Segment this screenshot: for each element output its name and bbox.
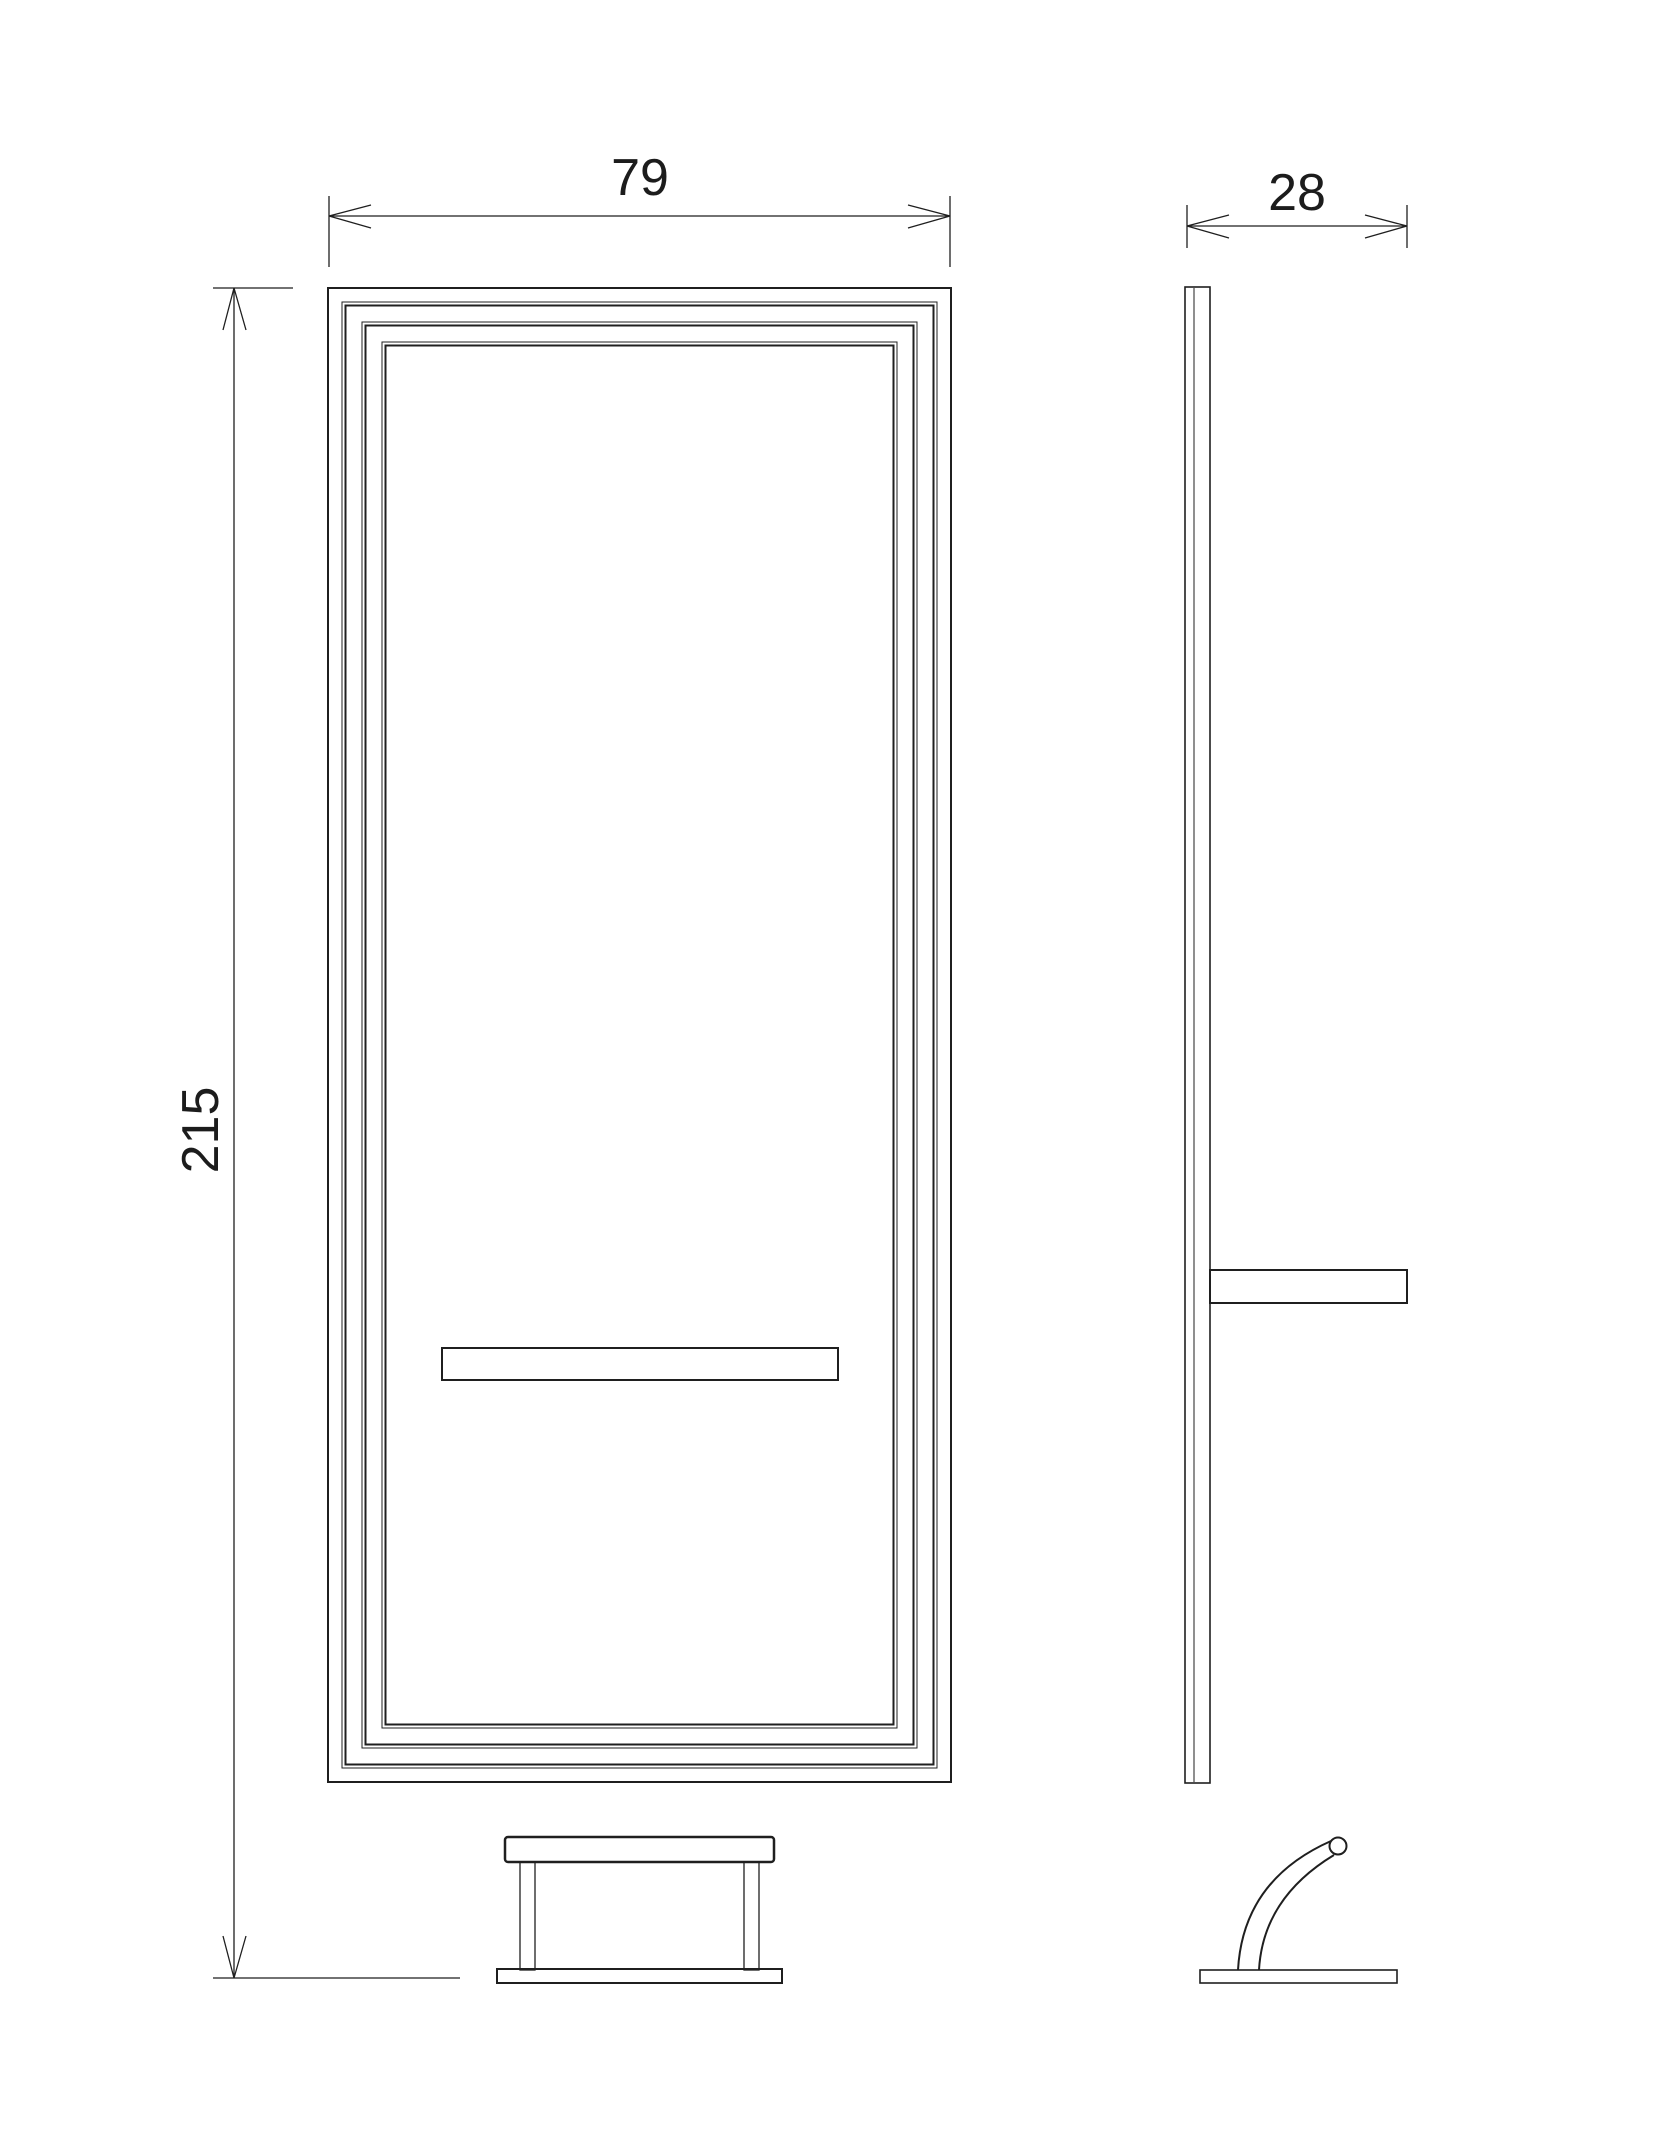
footrest-tube-end-cap [1330,1838,1347,1855]
technical-drawing-canvas: 79 28 215 [0,0,1653,2139]
overall-height-label: 215 [172,1087,230,1174]
frame-outer-edge [328,288,951,1782]
side-panel-outline [1185,287,1210,1783]
frame-line-4 [362,322,917,1748]
side-footrest-base [1200,1970,1397,1983]
drawing-sheet: 79 28 215 [0,0,1653,2139]
footrest-base-plate [497,1969,782,1983]
side-depth-label: 28 [1268,164,1326,222]
side-shelf [1210,1270,1407,1303]
footrest-tube-inner-curve [1259,1855,1334,1970]
footrest-top-bar [505,1837,774,1862]
front-width-label: 79 [611,149,669,207]
side-view-panel [1185,287,1407,1783]
frame-line-3 [346,306,934,1765]
footrest-left-leg [520,1862,535,1970]
frame-line-5 [366,326,914,1745]
front-shelf [442,1348,838,1380]
frame-line-2 [342,302,937,1768]
footrest-tube-outer-curve [1238,1841,1331,1970]
frame-line-6 [382,342,897,1728]
front-view-mirror-frame [328,288,951,1782]
front-view-footrest [497,1837,782,1983]
mirror-glass-edge [386,346,894,1725]
side-view-footrest [1200,1838,1397,1984]
footrest-right-leg [744,1862,759,1970]
